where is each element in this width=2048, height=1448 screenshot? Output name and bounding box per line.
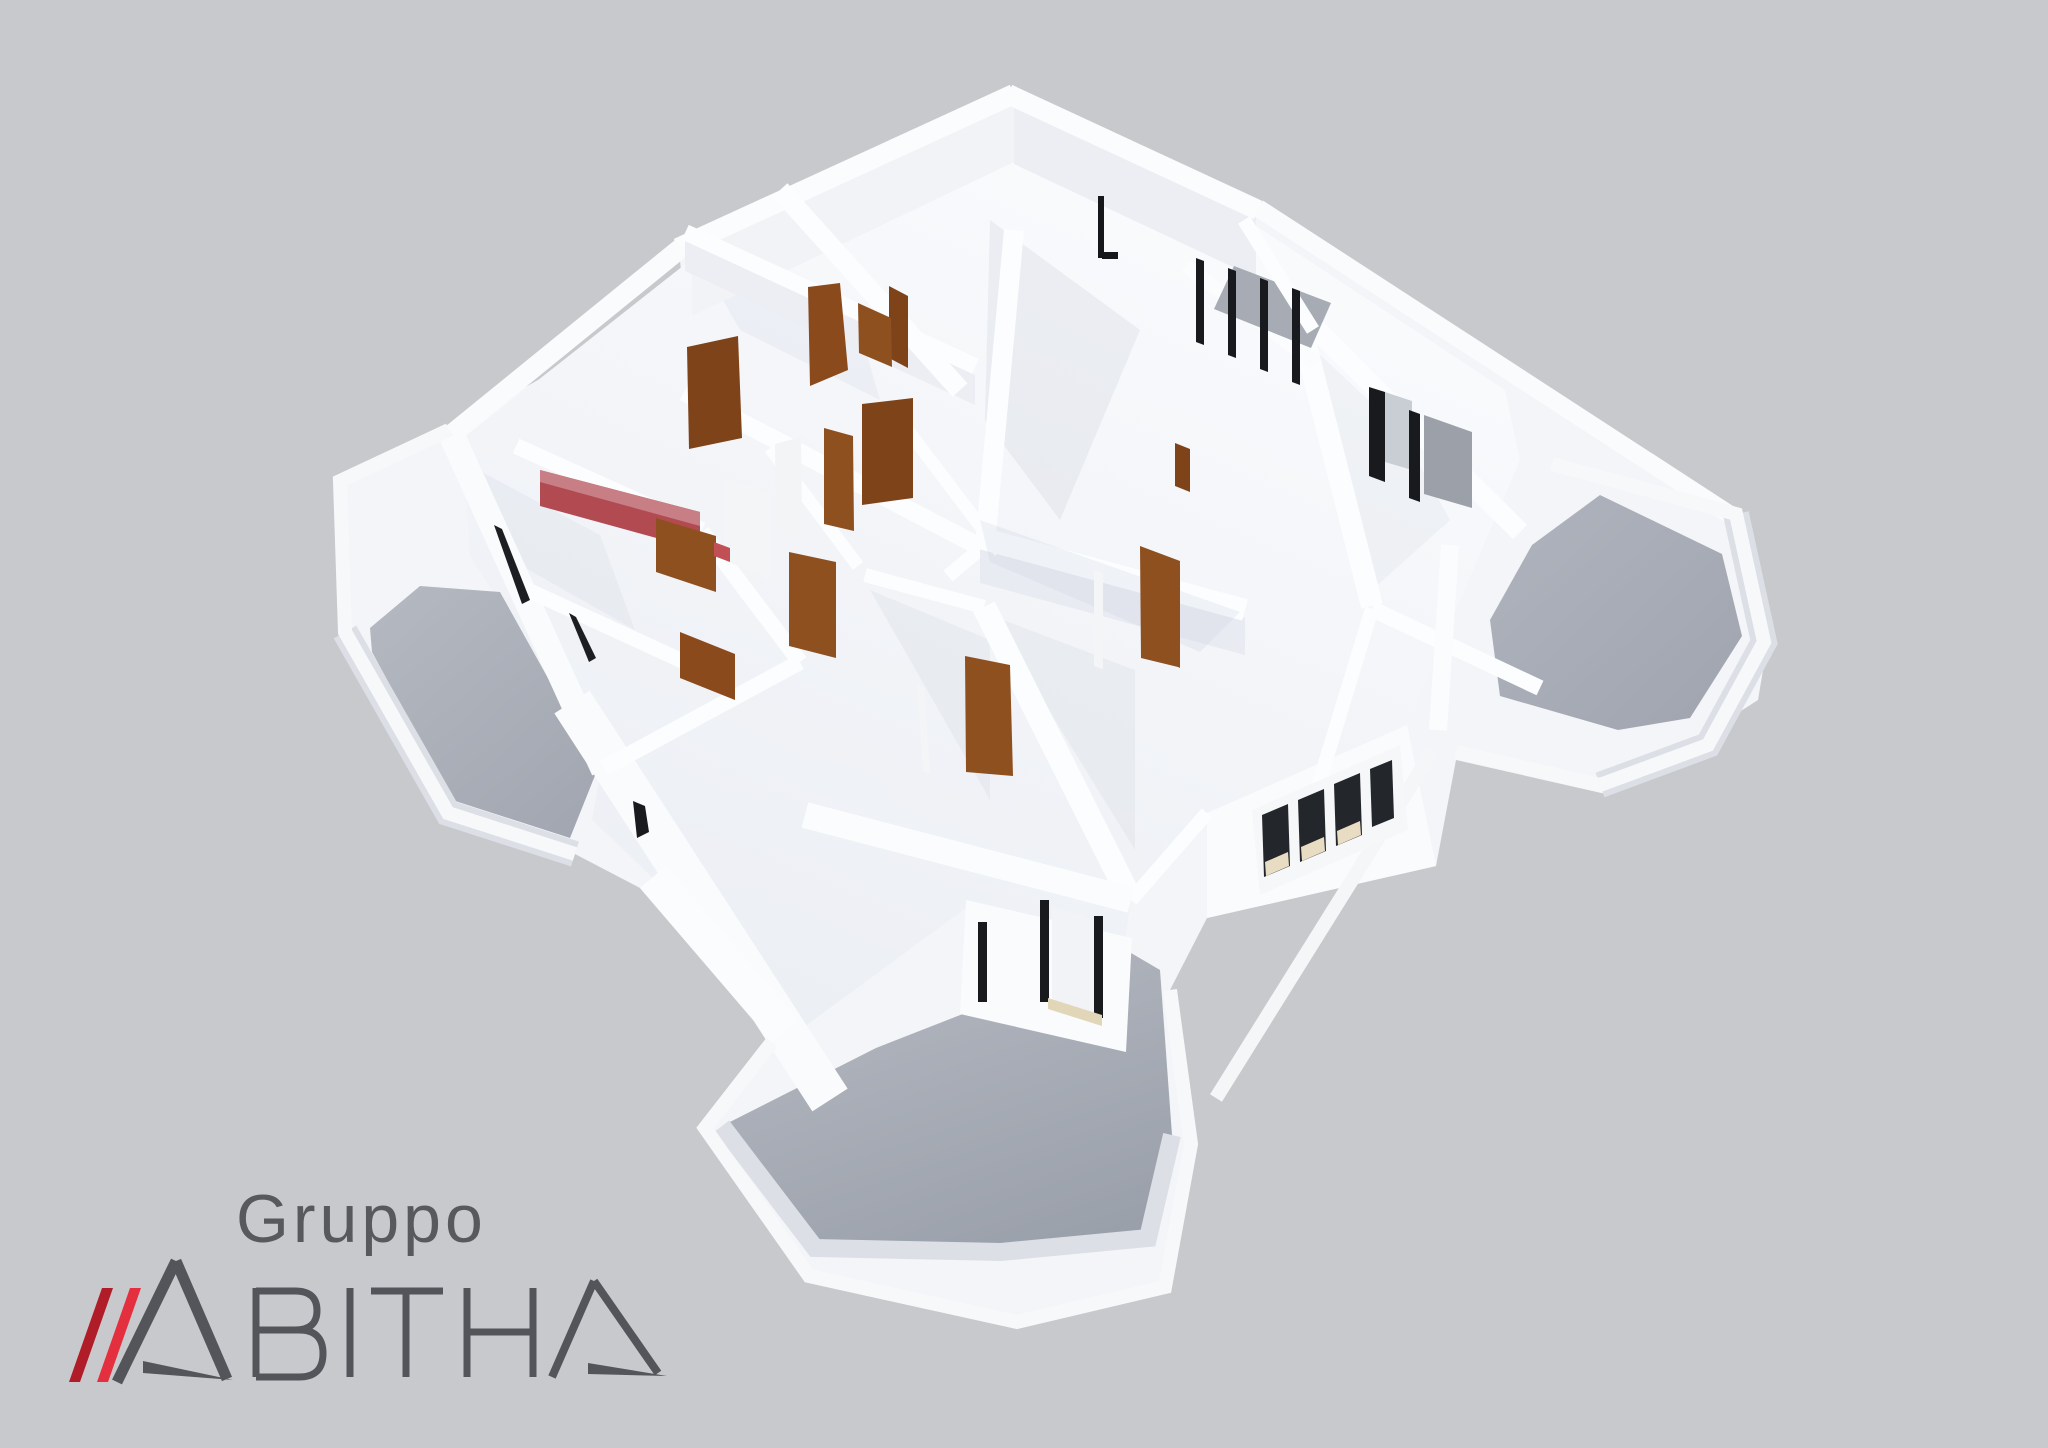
svg-text:Gruppo: Gruppo <box>236 1181 487 1257</box>
